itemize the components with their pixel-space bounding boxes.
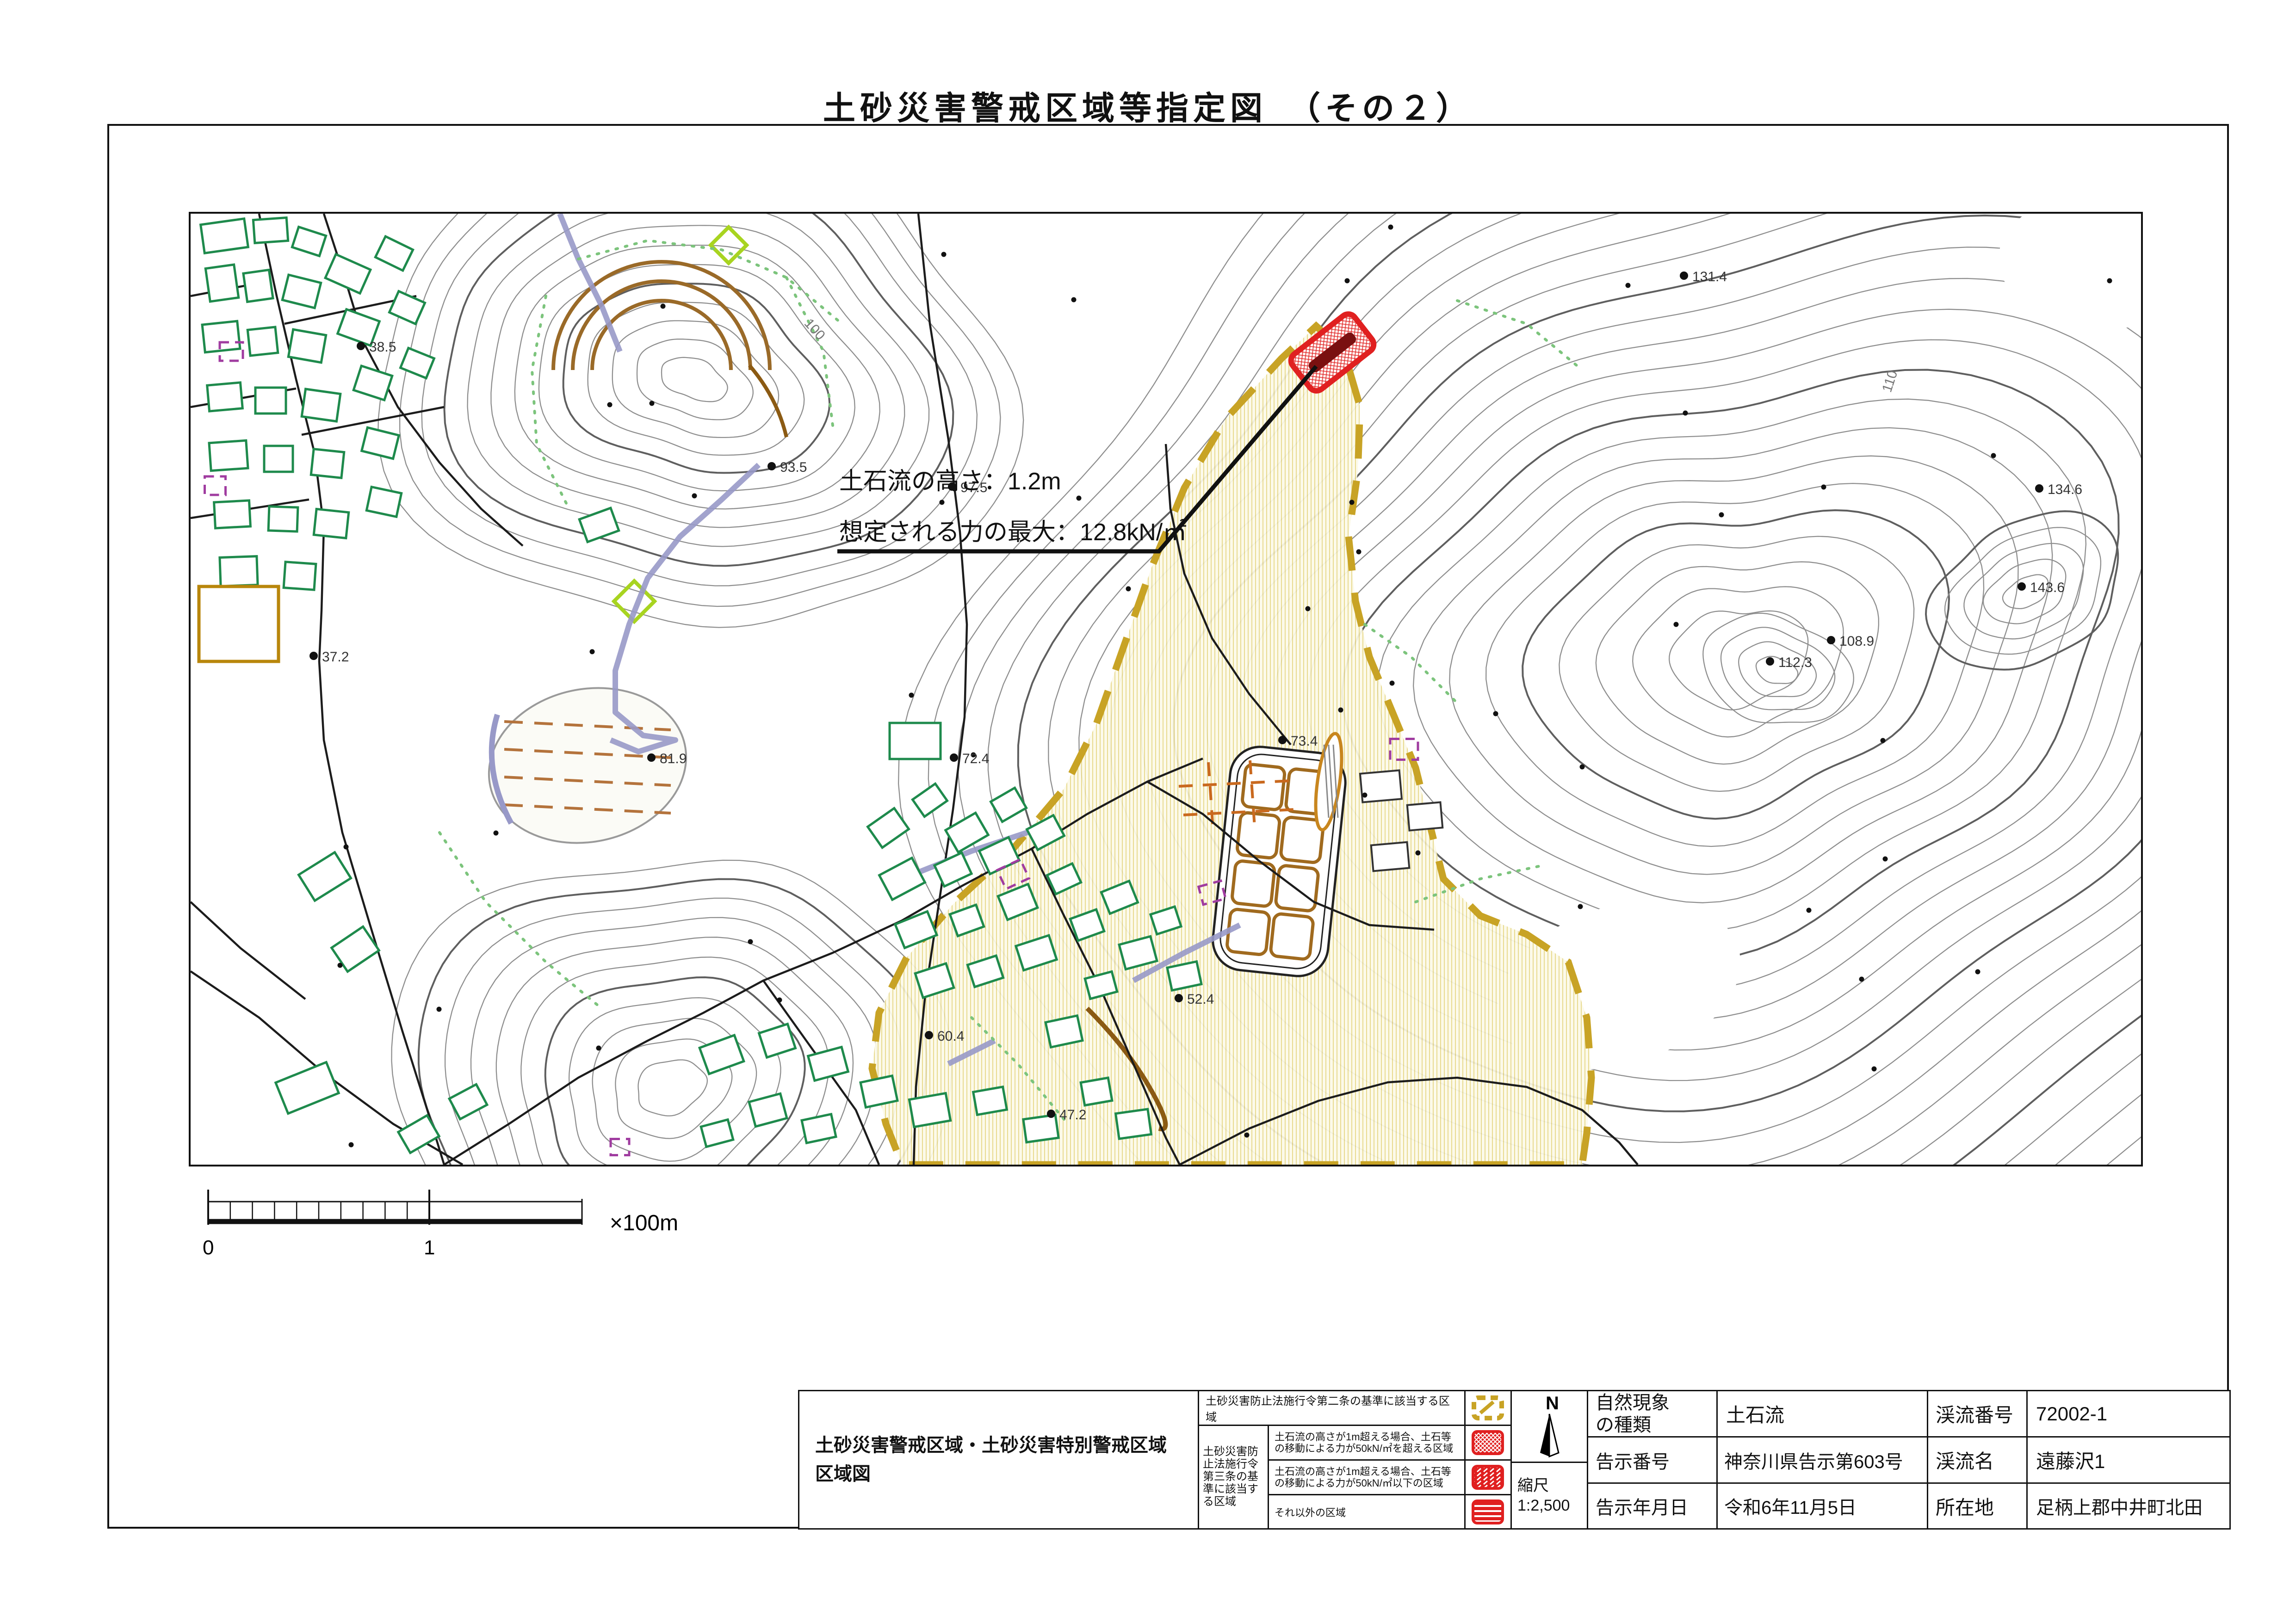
legend-swatch-special-under50 <box>1464 1459 1512 1495</box>
legend-row2-text: 土石流の高さが1m超える場合、土石等の移動による力が50kN/㎡を超える区域 <box>1275 1431 1459 1455</box>
scale-bar-one: 1 <box>424 1236 435 1259</box>
legend-row4-text: それ以外の区域 <box>1275 1505 1346 1519</box>
title-block-table: 土砂災害警戒区域・土砂災害特別警戒区域 区域図 土砂災害防止法施行令第二条の基準… <box>798 1390 2231 1530</box>
hazard-map-canvas: 38.537.293.597.581.972.473.460.452.447.2… <box>0 0 2296 1623</box>
field-notice-date-value: 令和6年11月5日 <box>1716 1482 1928 1530</box>
svg-text:60.4: 60.4 <box>937 1029 964 1044</box>
scale-bar: 0 1 ×100m <box>203 1190 678 1259</box>
svg-text:37.2: 37.2 <box>322 649 349 665</box>
north-arrow-icon: N <box>1522 1392 1577 1461</box>
legend-swatch-special-over50 <box>1464 1425 1512 1461</box>
special-zone-crosshatch-icon <box>1470 1429 1506 1456</box>
svg-text:112.3: 112.3 <box>1778 655 1812 670</box>
svg-text:81.9: 81.9 <box>660 751 687 766</box>
legend-article3-text: 土砂災害防止法施行令第三条の基準に該当する区域 <box>1203 1446 1264 1508</box>
annotation-line2: 想定される力の最大：12.8kN/㎡ <box>839 518 1187 546</box>
svg-text:93.5: 93.5 <box>780 460 807 475</box>
special-zone-diagonal-icon <box>1470 1464 1506 1491</box>
svg-text:131.4: 131.4 <box>1692 269 1727 284</box>
scale-bar-zero: 0 <box>203 1236 214 1259</box>
other-area-stripes-icon <box>1470 1499 1506 1525</box>
map-sheet-page: { "title": "土砂災害警戒区域等指定図 （その２）", "map": … <box>0 0 2296 1623</box>
field-location-label: 所在地 <box>1927 1482 2028 1530</box>
field-location-value: 足柄上郡中井町北田 <box>2026 1482 2231 1530</box>
legend-row3-text: 土石流の高さが1m超える場合、土石等の移動による力が50kN/㎡以下の区域 <box>1275 1466 1459 1489</box>
legend-article2-text: 土砂災害防止法施行令第二条の基準に該当する区域 <box>1206 1392 1458 1424</box>
legend-article2-cell: 土砂災害防止法施行令第二条の基準に該当する区域 <box>1198 1390 1466 1426</box>
legend-swatch-other-area <box>1464 1494 1512 1530</box>
svg-text:73.4: 73.4 <box>1291 734 1318 749</box>
field-phenomenon-label: 自然現象 の種類 <box>1587 1390 1718 1438</box>
scale-bar-unit: ×100m <box>610 1211 678 1235</box>
svg-text:47.2: 47.2 <box>1059 1107 1086 1123</box>
svg-text:38.5: 38.5 <box>369 339 396 355</box>
legend-row4-cell: それ以外の区域 <box>1268 1494 1466 1530</box>
svg-text:72.4: 72.4 <box>962 751 989 766</box>
legend-row3-cell: 土石流の高さが1m超える場合、土石等の移動による力が50kN/㎡以下の区域 <box>1268 1459 1466 1495</box>
north-arrow-cell: N <box>1510 1390 1588 1463</box>
sheet-title-cell: 土砂災害警戒区域・土砂災害特別警戒区域 区域図 <box>798 1390 1199 1530</box>
field-notice-date-label: 告示年月日 <box>1587 1482 1718 1530</box>
sheet-title: 土砂災害警戒区域・土砂災害特別警戒区域 区域図 <box>815 1431 1167 1488</box>
legend-swatch-warning-zone <box>1464 1390 1512 1426</box>
field-stream-number-label: 渓流番号 <box>1927 1390 2028 1438</box>
field-stream-name-value: 遠藤沢1 <box>2026 1436 2231 1484</box>
field-stream-name-label: 渓流名 <box>1927 1436 2028 1484</box>
legend-row2-cell: 土石流の高さが1m超える場合、土石等の移動による力が50kN/㎡を超える区域 <box>1268 1425 1466 1461</box>
map-scale-text: 縮尺 1:2,500 <box>1517 1476 1570 1515</box>
annotation-line1: 土石流の高さ：1.2m <box>839 468 1061 495</box>
legend-article3-group-cell: 土砂災害防止法施行令第三条の基準に該当する区域 <box>1198 1425 1269 1530</box>
warning-zone-swatch-icon <box>1470 1395 1506 1421</box>
field-notice-number-value: 神奈川県告示第603号 <box>1716 1436 1928 1484</box>
field-stream-number-value: 72002-1 <box>2026 1390 2231 1438</box>
map-scale-cell: 縮尺 1:2,500 <box>1510 1462 1588 1530</box>
field-notice-number-label: 告示番号 <box>1587 1436 1718 1484</box>
north-label: N <box>1546 1393 1559 1413</box>
svg-text:143.6: 143.6 <box>2030 580 2065 595</box>
svg-text:52.4: 52.4 <box>1187 992 1214 1007</box>
field-phenomenon-value: 土石流 <box>1716 1390 1928 1438</box>
svg-text:134.6: 134.6 <box>2048 482 2082 497</box>
svg-text:108.9: 108.9 <box>1839 634 1874 649</box>
